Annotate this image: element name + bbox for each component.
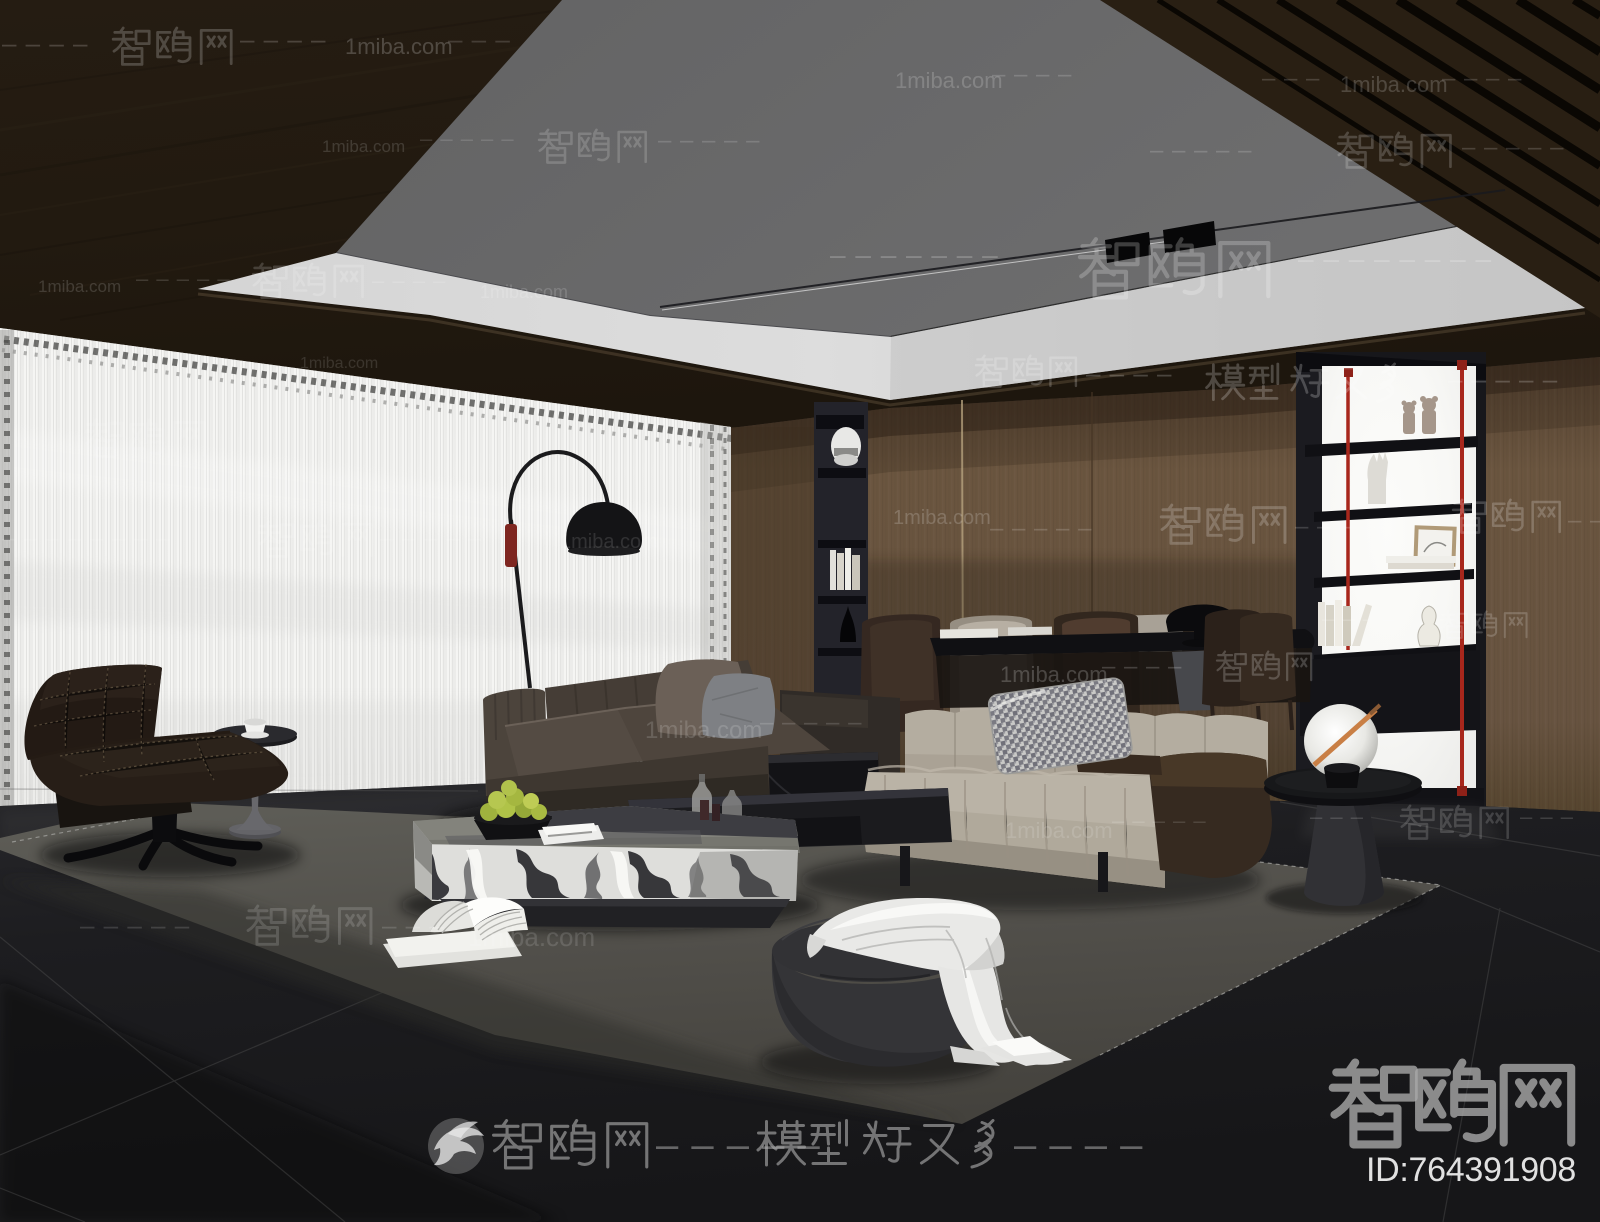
svg-text:1miba.com: 1miba.com bbox=[300, 355, 378, 372]
svg-text:1miba.com: 1miba.com bbox=[645, 717, 762, 744]
svg-text:– – – – –: – – – – – bbox=[990, 515, 1092, 542]
svg-text:1miba.com: 1miba.com bbox=[1005, 818, 1113, 843]
svg-text:– – – – –: – – – – – bbox=[136, 266, 231, 291]
svg-text:– –: – – bbox=[1568, 507, 1600, 534]
svg-text:1miba.com: 1miba.com bbox=[38, 277, 121, 296]
svg-text:– – – – –: – – – – – bbox=[760, 709, 862, 736]
svg-text:– – – – –: – – – – – bbox=[1462, 134, 1564, 161]
svg-text:– – – – –: – – – – – bbox=[1112, 808, 1207, 833]
svg-text:– – –: – – – bbox=[1310, 804, 1364, 829]
svg-text:– – – –: – – – – bbox=[1322, 606, 1396, 631]
svg-text:– – – –: – – – – bbox=[1014, 1123, 1143, 1167]
svg-text:– – – –: – – – – bbox=[1102, 653, 1182, 680]
svg-text:– – – – –: – – – – – bbox=[1448, 364, 1558, 394]
svg-text:1miba.com: 1miba.com bbox=[1000, 662, 1108, 687]
svg-text:1miba.com: 1miba.com bbox=[322, 137, 405, 156]
svg-text:1miba.com: 1miba.com bbox=[893, 507, 991, 529]
svg-text:ID:764391908: ID:764391908 bbox=[1366, 1151, 1576, 1189]
svg-text:– – – –: – – – – bbox=[1442, 65, 1522, 92]
svg-text:– – – –: – – – – bbox=[992, 61, 1072, 88]
svg-text:– – – –: – – – – bbox=[1086, 358, 1173, 388]
svg-text:– – – –: – – – – bbox=[372, 268, 446, 293]
svg-text:– – –: – – – bbox=[448, 24, 511, 54]
svg-text:– – – –: – – – – bbox=[2, 28, 89, 58]
svg-text:1miba.com: 1miba.com bbox=[345, 34, 453, 59]
svg-text:– – – – – – – –: – – – – – – – – bbox=[2, 525, 170, 552]
svg-text:– – – – –: – – – – – bbox=[658, 127, 760, 154]
svg-text:– – – –: – – – – bbox=[1295, 513, 1375, 540]
svg-text:– – – – –: – – – – – bbox=[380, 525, 482, 552]
svg-text:– – – – –: – – – – – bbox=[420, 126, 515, 151]
svg-text:1miba.com: 1miba.com bbox=[480, 282, 568, 302]
svg-text:1miba.com: 1miba.com bbox=[468, 922, 595, 952]
svg-text:– – – –: – – – – bbox=[240, 24, 327, 54]
svg-text:– – – – –: – – – – – bbox=[80, 910, 190, 940]
svg-text:– – –: – – – bbox=[382, 910, 445, 940]
svg-text:– – – – – – –: – – – – – – – bbox=[830, 239, 999, 270]
svg-text:– – – – – – – –: – – – – – – – – bbox=[1298, 243, 1492, 274]
svg-text:1miba.com: 1miba.com bbox=[895, 68, 1003, 93]
svg-text:– – –: – – – bbox=[1520, 804, 1574, 829]
svg-text:– – – – –: – – – – – bbox=[1150, 137, 1252, 164]
svg-text:1miba.com: 1miba.com bbox=[560, 531, 658, 553]
svg-text:1miba.com: 1miba.com bbox=[1340, 72, 1448, 97]
svg-text:– – –: – – – bbox=[1262, 65, 1320, 92]
